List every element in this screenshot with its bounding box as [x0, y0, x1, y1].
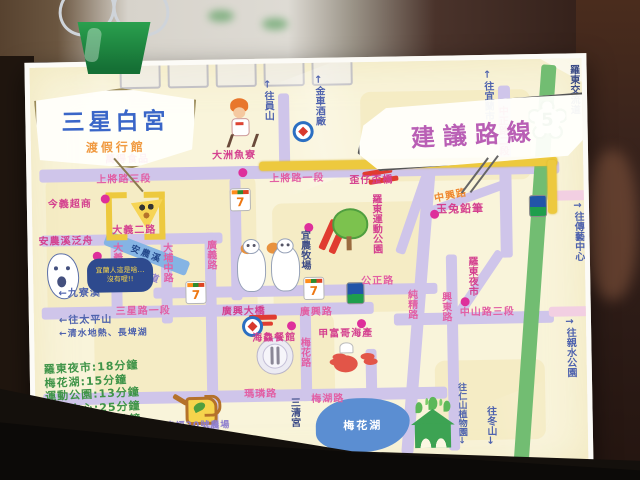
road-label: 上將路一段	[269, 169, 324, 185]
photo-of-map: 三星白宮 渡假行館 建議路線 安農溪 宜蘭人這是啥… 沒有喔!! 羅東夜市:18…	[0, 0, 640, 480]
road-label: 梅湖路	[311, 389, 344, 405]
road-label: 廣義路	[203, 240, 219, 270]
place-label: 今義超商	[48, 195, 92, 211]
direction-label: ↑往員山	[260, 80, 276, 121]
direction-label: 往仁山植物園↓	[455, 382, 469, 446]
road-segment	[549, 306, 594, 317]
place-label: 海鱻餐館	[252, 328, 296, 344]
suggested-route-label: 建議路線	[410, 111, 540, 153]
speech-bubble: 宜蘭人這是啥… 沒有喔!!	[87, 258, 154, 293]
fami-icon	[529, 195, 547, 217]
place-label: 玉兔鉛筆	[436, 200, 484, 217]
speech-line: 沒有喔!!	[107, 275, 134, 284]
runner-icon	[224, 98, 257, 151]
place-label: 大洲魚寮	[212, 146, 256, 162]
place-label: 羅東夜市	[464, 256, 480, 296]
road-label: 公正路	[361, 272, 394, 288]
direction-label: →往傳藝中心	[570, 200, 586, 261]
background-hand	[586, 150, 638, 300]
sheep-icon	[234, 225, 301, 292]
place-label: 甲富哥海產	[318, 324, 373, 340]
house-icon	[410, 396, 455, 449]
lake-icon: 梅花湖	[315, 397, 410, 453]
tree-icon	[332, 208, 365, 251]
direction-label: 往冬山↓	[482, 406, 498, 447]
seven-icon: 7	[230, 188, 251, 211]
map-title: 三星白宮	[61, 101, 170, 137]
road-label: 歪仔歪橋	[349, 171, 393, 187]
road-label: 廣興路	[300, 303, 333, 319]
direction-label: ←清水地熱、長埤湖	[59, 325, 148, 340]
binder-clip	[76, 22, 152, 74]
direction-label: →往親水公園	[562, 316, 578, 377]
crab-icon	[327, 342, 364, 373]
poi-dot	[101, 194, 110, 203]
place-label: 羅東運動公園	[368, 194, 384, 254]
speech-line: 宜蘭人這是啥…	[95, 266, 144, 276]
road-label: 大義二路	[112, 221, 156, 237]
map-subtitle: 渡假行館	[86, 137, 146, 155]
suggested-route-highlight	[547, 160, 557, 214]
background-sign-mark	[208, 10, 234, 22]
seven-icon: 7	[185, 281, 206, 304]
place-label: 宜農牧場	[296, 230, 312, 270]
background-sign-mark	[262, 18, 288, 30]
road-label: 梅花路	[296, 337, 312, 367]
direction-label: ←往太平山	[59, 310, 113, 326]
road-label: 廣興大橋	[222, 302, 266, 318]
road-label: 純精路	[403, 289, 419, 319]
place-label: 安農溪泛舟	[38, 232, 93, 248]
road-label: 三星路一段	[116, 301, 171, 317]
road-label: 興東路	[437, 292, 453, 322]
map-title-bubble: 三星白宮 渡假行館	[34, 87, 197, 170]
place-label: 三清宮	[286, 397, 302, 427]
road-label: 瑪璘路	[244, 385, 277, 401]
direction-label: ↑金車酒廠	[311, 75, 327, 126]
seven-icon: 7	[303, 277, 324, 300]
road-label: 中山路三段	[460, 302, 515, 318]
